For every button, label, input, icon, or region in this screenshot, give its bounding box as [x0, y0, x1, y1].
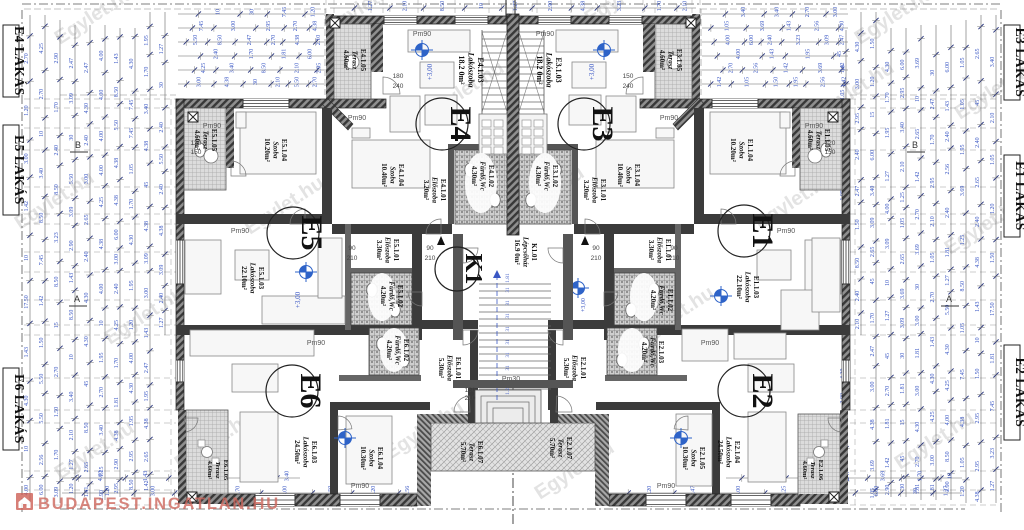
svg-text:31: 31	[506, 300, 511, 306]
svg-text:10: 10	[975, 337, 981, 343]
svg-text:2.65: 2.65	[84, 214, 90, 225]
svg-text:4.60m²: 4.60m²	[801, 461, 808, 480]
svg-text:1.43: 1.43	[770, 49, 776, 60]
svg-text:Terasz: Terasz	[214, 461, 221, 479]
svg-text:2.10: 2.10	[855, 319, 861, 330]
svg-text:2.10: 2.10	[69, 430, 75, 441]
svg-text:K1.01: K1.01	[530, 243, 538, 261]
svg-text:6.00: 6.00	[900, 59, 906, 70]
svg-text:10: 10	[841, 65, 847, 71]
svg-text:1.05: 1.05	[129, 164, 135, 175]
svg-text:150: 150	[191, 149, 202, 156]
svg-text:3.00: 3.00	[114, 254, 120, 265]
svg-text:Fürdő,Wc: Fürdő,Wc	[479, 161, 487, 190]
svg-text:1.95: 1.95	[144, 391, 150, 402]
svg-text:6.00: 6.00	[114, 229, 120, 240]
svg-text:2.40: 2.40	[84, 135, 90, 146]
svg-text:1.81: 1.81	[945, 247, 951, 258]
svg-text:1.70: 1.70	[249, 49, 255, 60]
svg-text:2.40: 2.40	[855, 291, 861, 302]
svg-text:E5.1.04: E5.1.04	[280, 139, 288, 162]
svg-text:Pm90: Pm90	[660, 115, 678, 122]
svg-text:4.30: 4.30	[930, 373, 936, 384]
svg-text:Pm30: Pm30	[502, 376, 520, 383]
svg-text:Pm90: Pm90	[348, 115, 366, 122]
svg-text:180: 180	[393, 73, 404, 80]
svg-text:3.00: 3.00	[196, 77, 202, 88]
svg-text:3.69: 3.69	[915, 244, 921, 255]
svg-text:3.69: 3.69	[818, 63, 824, 74]
svg-text:1.27: 1.27	[944, 486, 950, 497]
svg-text:Lakószoba: Lakószoba	[545, 51, 554, 87]
svg-text:8.50: 8.50	[39, 213, 45, 224]
svg-text:2.90: 2.90	[548, 1, 554, 12]
svg-text:E1 LAKÁS: E1 LAKÁS	[1013, 161, 1024, 231]
svg-text:1.42: 1.42	[717, 77, 723, 88]
svg-text:3.09: 3.09	[159, 265, 165, 276]
svg-text:1.27: 1.27	[159, 317, 165, 328]
svg-text:3.23: 3.23	[617, 1, 623, 12]
svg-text:3.40: 3.40	[285, 471, 291, 482]
svg-text:Terasz: Terasz	[351, 51, 359, 70]
svg-text:1.50: 1.50	[773, 77, 779, 88]
svg-text:1.95: 1.95	[806, 49, 812, 60]
svg-text:4.00: 4.00	[99, 51, 105, 62]
svg-text:+3,00: +3,00	[294, 291, 302, 308]
svg-text:3.00: 3.00	[870, 381, 876, 392]
svg-text:4.38: 4.38	[114, 158, 120, 169]
svg-text:7.45: 7.45	[39, 255, 45, 266]
svg-text:3.00: 3.00	[84, 174, 90, 185]
svg-text:31: 31	[506, 365, 511, 371]
svg-text:1.81: 1.81	[281, 49, 287, 60]
svg-text:6.00: 6.00	[39, 484, 45, 495]
svg-text:E2: E2	[746, 373, 779, 408]
svg-text:120: 120	[825, 140, 836, 147]
svg-text:2.95: 2.95	[114, 483, 120, 494]
svg-text:1.05: 1.05	[960, 58, 966, 69]
svg-text:210: 210	[591, 255, 602, 262]
svg-text:1.20: 1.20	[69, 483, 75, 494]
svg-text:Előszoba: Előszoba	[384, 236, 392, 264]
svg-text:30: 30	[250, 9, 256, 15]
svg-text:Szoba: Szoba	[368, 449, 376, 467]
svg-text:6.00: 6.00	[870, 150, 876, 161]
svg-text:3.09: 3.09	[144, 253, 150, 264]
svg-text:31: 31	[506, 313, 511, 319]
svg-text:2.40: 2.40	[945, 207, 951, 218]
svg-text:1.27: 1.27	[885, 311, 891, 322]
svg-text:1.20: 1.20	[990, 203, 996, 214]
svg-text:4.30: 4.30	[84, 293, 90, 304]
svg-text:4.30: 4.30	[129, 383, 135, 394]
svg-text:E2 LAKÁS: E2 LAKÁS	[1013, 358, 1024, 428]
svg-text:2.95: 2.95	[266, 21, 272, 32]
svg-text:1.95: 1.95	[129, 416, 135, 427]
svg-text:Előszoba: Előszoba	[446, 354, 454, 382]
svg-text:1.70: 1.70	[885, 92, 891, 103]
svg-text:3.00: 3.00	[833, 7, 839, 18]
svg-text:2.70: 2.70	[293, 21, 299, 32]
svg-text:Előszoba: Előszoba	[431, 176, 439, 204]
svg-text:17.50: 17.50	[990, 302, 996, 316]
svg-text:3.30m²: 3.30m²	[375, 240, 383, 260]
svg-text:10: 10	[948, 473, 954, 479]
svg-text:10.30m²: 10.30m²	[359, 446, 367, 470]
svg-text:E2.1.05: E2.1.05	[698, 447, 706, 470]
svg-text:Szoba: Szoba	[272, 141, 280, 159]
svg-text:3.09: 3.09	[69, 93, 75, 104]
svg-text:4.30: 4.30	[839, 21, 845, 32]
svg-text:+3,00: +3,00	[426, 63, 434, 80]
svg-text:1.43: 1.43	[945, 101, 951, 112]
svg-text:8.50: 8.50	[217, 35, 223, 46]
svg-text:6.00: 6.00	[874, 486, 880, 497]
svg-text:E4.1.02: E4.1.02	[487, 165, 495, 188]
svg-text:1.81: 1.81	[900, 383, 906, 394]
svg-text:22.10m²: 22.10m²	[240, 266, 248, 290]
svg-text:4.38: 4.38	[114, 430, 120, 441]
svg-text:E3 LAKÁS: E3 LAKÁS	[1013, 28, 1024, 98]
svg-text:E5.1.01: E5.1.01	[392, 239, 400, 262]
svg-text:10: 10	[215, 9, 221, 15]
svg-text:4.30m²: 4.30m²	[534, 166, 542, 186]
svg-text:4.38: 4.38	[870, 419, 876, 430]
svg-text:3.69: 3.69	[760, 21, 766, 32]
svg-text:2.40: 2.40	[214, 49, 220, 60]
svg-text:1.70: 1.70	[54, 450, 60, 461]
svg-text:22.10m²: 22.10m²	[735, 275, 743, 299]
svg-text:1.20: 1.20	[129, 320, 135, 331]
svg-text:E2.1.01: E2.1.01	[579, 357, 587, 380]
svg-text:E2.1.07: E2.1.07	[565, 437, 573, 460]
svg-text:E2.1.03: E2.1.03	[657, 341, 665, 364]
svg-text:1.50: 1.50	[870, 39, 876, 50]
svg-text:Fürdő,Wc: Fürdő,Wc	[658, 285, 666, 314]
svg-text:30: 30	[913, 488, 919, 494]
svg-text:1.42: 1.42	[39, 296, 45, 307]
svg-text:5.70m²: 5.70m²	[459, 442, 467, 462]
svg-text:30: 30	[253, 79, 259, 85]
svg-text:2.65: 2.65	[870, 247, 876, 258]
svg-text:6.00: 6.00	[749, 35, 755, 46]
svg-text:+3,00: +3,00	[581, 298, 587, 312]
svg-text:30: 30	[930, 70, 936, 76]
svg-text:Pm90: Pm90	[777, 228, 795, 235]
svg-text:5.50: 5.50	[295, 77, 301, 88]
svg-text:5.30m²: 5.30m²	[437, 358, 445, 378]
svg-text:3.40: 3.40	[229, 63, 235, 74]
svg-text:1.70: 1.70	[930, 134, 936, 145]
svg-text:2.70: 2.70	[729, 63, 735, 74]
svg-text:2.40: 2.40	[114, 284, 120, 295]
svg-text:E4 LAKÁS: E4 LAKÁS	[12, 26, 27, 96]
svg-text:2.90: 2.90	[885, 485, 891, 496]
svg-text:E2.1.04: E2.1.04	[733, 441, 741, 464]
svg-text:4.00: 4.00	[99, 131, 105, 142]
svg-text:E4.1.03: E4.1.03	[476, 57, 485, 82]
svg-text:2.10: 2.10	[930, 216, 936, 227]
svg-text:1.81: 1.81	[114, 397, 120, 408]
svg-text:150: 150	[825, 149, 836, 156]
svg-text:4.38: 4.38	[99, 239, 105, 250]
svg-text:E5.1.03: E5.1.03	[257, 267, 265, 290]
svg-text:1.70: 1.70	[657, 1, 663, 12]
svg-text:1.05: 1.05	[744, 77, 750, 88]
svg-text:E1.1.02: E1.1.02	[666, 289, 674, 312]
svg-text:4.00: 4.00	[99, 165, 105, 176]
svg-text:E4.1.05: E4.1.05	[359, 49, 367, 72]
svg-text:2.40: 2.40	[767, 35, 773, 46]
svg-text:10.40m²: 10.40m²	[616, 163, 624, 187]
svg-text:2.95: 2.95	[129, 451, 135, 462]
svg-text:5.50: 5.50	[39, 413, 45, 424]
svg-text:3.40: 3.40	[774, 7, 780, 18]
svg-text:4.60m²: 4.60m²	[806, 130, 814, 150]
svg-text:7.45: 7.45	[129, 128, 135, 139]
svg-text:E3.1.04: E3.1.04	[633, 164, 641, 187]
svg-text:1.05: 1.05	[900, 218, 906, 229]
svg-text:E6.1.04: E6.1.04	[376, 447, 384, 470]
svg-text:Lakószoba: Lakószoba	[744, 271, 752, 303]
svg-text:10.40m²: 10.40m²	[380, 163, 388, 187]
svg-text:210: 210	[425, 255, 436, 262]
svg-text:5.50: 5.50	[193, 35, 199, 46]
svg-text:3.00: 3.00	[855, 79, 861, 90]
svg-text:2.10: 2.10	[990, 113, 996, 124]
svg-text:2.40: 2.40	[54, 145, 60, 156]
svg-text:3.09: 3.09	[69, 207, 75, 218]
svg-text:Pm90: Pm90	[701, 340, 719, 347]
svg-text:3.69: 3.69	[960, 186, 966, 197]
svg-text:4.25: 4.25	[930, 411, 936, 422]
svg-text:K1: K1	[460, 254, 486, 285]
svg-text:120: 120	[191, 140, 202, 147]
svg-text:10.20m²: 10.20m²	[263, 138, 271, 162]
svg-text:30: 30	[915, 284, 921, 290]
svg-text:45: 45	[885, 353, 891, 359]
svg-text:2.65: 2.65	[144, 452, 150, 463]
svg-text:4.60m²: 4.60m²	[658, 50, 666, 70]
svg-text:A: A	[74, 294, 80, 304]
svg-text:3.69: 3.69	[881, 471, 887, 482]
svg-text:1.05: 1.05	[725, 21, 731, 32]
svg-text:E4.1.04: E4.1.04	[397, 164, 405, 187]
svg-text:1.27: 1.27	[159, 44, 165, 55]
svg-text:10: 10	[39, 131, 45, 137]
svg-text:3.23: 3.23	[54, 232, 60, 243]
svg-text:2.56: 2.56	[821, 77, 827, 88]
svg-text:4.38: 4.38	[313, 21, 319, 32]
svg-text:E1.1.04: E1.1.04	[746, 139, 754, 162]
svg-text:2.47: 2.47	[84, 62, 90, 73]
svg-text:2.95: 2.95	[317, 63, 323, 74]
svg-text:4.00: 4.00	[945, 415, 951, 426]
svg-text:E4: E4	[444, 106, 477, 141]
svg-text:Terasz: Terasz	[468, 443, 476, 462]
svg-text:150: 150	[623, 73, 634, 80]
svg-text:E5: E5	[295, 215, 328, 250]
svg-text:Pm90: Pm90	[413, 31, 431, 38]
svg-text:31: 31	[506, 326, 511, 332]
svg-text:8.50: 8.50	[855, 258, 861, 269]
svg-text:90: 90	[348, 245, 356, 252]
svg-text:10: 10	[24, 446, 30, 452]
svg-text:8.50: 8.50	[440, 1, 446, 12]
svg-text:Előszoba: Előszoba	[656, 236, 664, 264]
svg-text:4.30: 4.30	[84, 336, 90, 347]
svg-text:2.40: 2.40	[84, 251, 90, 262]
svg-text:Előszoba: Előszoba	[591, 176, 599, 204]
svg-text:4.38: 4.38	[580, 1, 586, 12]
svg-text:8.50: 8.50	[261, 63, 267, 74]
svg-text:Szoba: Szoba	[690, 449, 698, 467]
svg-text:4.25: 4.25	[39, 43, 45, 54]
svg-text:3.40: 3.40	[741, 7, 747, 18]
svg-text:4.30: 4.30	[129, 235, 135, 246]
svg-text:5.50: 5.50	[114, 120, 120, 131]
svg-text:1.42: 1.42	[784, 63, 790, 74]
svg-text:1.20: 1.20	[960, 486, 966, 497]
svg-text:90: 90	[426, 245, 434, 252]
svg-text:1.81: 1.81	[990, 353, 996, 364]
svg-text:1.42: 1.42	[842, 77, 848, 88]
svg-text:45: 45	[84, 381, 90, 387]
svg-text:B: B	[75, 140, 81, 150]
svg-text:5.50: 5.50	[69, 174, 75, 185]
svg-text:4.25: 4.25	[201, 63, 207, 74]
svg-text:10: 10	[885, 280, 891, 286]
svg-text:4.25: 4.25	[114, 320, 120, 331]
svg-text:2.40: 2.40	[159, 184, 165, 195]
svg-text:3.09: 3.09	[885, 238, 891, 249]
svg-text:1.27: 1.27	[69, 459, 75, 470]
svg-text:2.56: 2.56	[945, 164, 951, 175]
svg-text:Fürdő,Wc: Fürdő,Wc	[394, 335, 402, 364]
svg-text:1.42: 1.42	[885, 458, 891, 469]
svg-text:1.95: 1.95	[960, 145, 966, 156]
svg-text:1.05: 1.05	[840, 90, 846, 101]
svg-text:2.47: 2.47	[930, 99, 936, 110]
svg-text:2.95: 2.95	[855, 113, 861, 124]
svg-text:E1: E1	[746, 213, 779, 248]
svg-text:E1.1.03: E1.1.03	[752, 276, 760, 299]
svg-text:2.70: 2.70	[271, 35, 277, 46]
svg-text:4.38: 4.38	[114, 195, 120, 206]
svg-text:Lakószoba: Lakószoba	[725, 436, 733, 468]
svg-text:210: 210	[347, 255, 358, 262]
svg-text:2.70: 2.70	[930, 292, 936, 303]
svg-text:2.70: 2.70	[39, 89, 45, 100]
svg-text:2.47: 2.47	[69, 58, 75, 69]
svg-text:2.95: 2.95	[900, 88, 906, 99]
svg-text:2.70: 2.70	[885, 386, 891, 397]
svg-text:45: 45	[837, 51, 843, 57]
svg-text:Pm90: Pm90	[231, 228, 249, 235]
svg-text:18.2 0m²: 18.2 0m²	[535, 55, 544, 85]
svg-text:2.40: 2.40	[975, 216, 981, 227]
svg-text:3.40: 3.40	[69, 392, 75, 403]
svg-text:15: 15	[900, 420, 906, 426]
svg-text:1.81: 1.81	[915, 348, 921, 359]
svg-text:1.42: 1.42	[915, 172, 921, 183]
svg-text:E3.1.03: E3.1.03	[554, 57, 563, 82]
svg-text:E3.1.02: E3.1.02	[551, 165, 559, 188]
svg-text:10: 10	[479, 3, 485, 9]
svg-text:7.45: 7.45	[282, 7, 288, 18]
svg-text:1.20: 1.20	[24, 105, 30, 116]
svg-text:1.50: 1.50	[855, 219, 861, 230]
svg-text:1.20: 1.20	[311, 7, 317, 18]
svg-text:5.50: 5.50	[39, 374, 45, 385]
svg-text:1.27: 1.27	[885, 171, 891, 182]
svg-text:4.00: 4.00	[725, 35, 731, 46]
svg-text:8.50: 8.50	[54, 184, 60, 195]
svg-text:Fürdő,Wc: Fürdő,Wc	[543, 161, 551, 190]
svg-text:4.38: 4.38	[960, 417, 966, 428]
svg-text:4.25: 4.25	[945, 380, 951, 391]
svg-text:1.05: 1.05	[990, 154, 996, 165]
svg-text:2.70: 2.70	[99, 387, 105, 398]
svg-text:1.95: 1.95	[794, 77, 800, 88]
svg-text:2.10: 2.10	[295, 63, 301, 74]
svg-text:4.30: 4.30	[945, 344, 951, 355]
svg-text:3.69: 3.69	[915, 58, 921, 69]
svg-text:1.43: 1.43	[786, 21, 792, 32]
svg-text:1.43: 1.43	[144, 328, 150, 339]
svg-text:6.00: 6.00	[945, 62, 951, 73]
svg-text:E5 LAKÁS: E5 LAKÁS	[12, 135, 27, 205]
svg-text:1.70: 1.70	[129, 199, 135, 210]
svg-text:2.47: 2.47	[247, 35, 253, 46]
svg-text:2.70: 2.70	[54, 367, 60, 378]
svg-text:1.70: 1.70	[114, 358, 120, 369]
svg-text:1.95: 1.95	[144, 35, 150, 46]
svg-text:31: 31	[506, 352, 511, 358]
svg-text:Fürdő,Wc: Fürdő,Wc	[388, 281, 396, 310]
svg-text:4.60m²: 4.60m²	[342, 50, 350, 70]
svg-text:1.20: 1.20	[870, 76, 876, 87]
svg-text:4.30: 4.30	[129, 59, 135, 70]
svg-text:2.10: 2.10	[276, 77, 282, 88]
svg-text:5.30m²: 5.30m²	[562, 358, 570, 378]
svg-text:2.65: 2.65	[975, 48, 981, 59]
svg-text:2.10: 2.10	[316, 35, 322, 46]
svg-text:Pm90: Pm90	[657, 483, 675, 490]
svg-text:4.38: 4.38	[975, 491, 981, 502]
svg-text:10: 10	[915, 96, 921, 102]
svg-text:1.95: 1.95	[129, 280, 135, 291]
svg-text:2.47: 2.47	[144, 363, 150, 374]
svg-text:1.70: 1.70	[144, 67, 150, 78]
svg-text:E6 LAKÁS: E6 LAKÁS	[12, 374, 27, 444]
svg-text:2.65: 2.65	[84, 462, 90, 473]
svg-text:Pm90: Pm90	[307, 340, 325, 347]
svg-text:E2.1.06: E2.1.06	[817, 460, 824, 481]
svg-text:1.27: 1.27	[945, 275, 951, 286]
svg-text:4.30: 4.30	[855, 42, 861, 53]
svg-text:2.56: 2.56	[39, 455, 45, 466]
svg-text:E6: E6	[294, 373, 327, 408]
svg-text:1.25: 1.25	[960, 235, 966, 246]
svg-text:4.00: 4.00	[98, 471, 104, 482]
svg-text:45: 45	[900, 456, 906, 462]
svg-text:150: 150	[465, 387, 476, 394]
svg-text:30: 30	[159, 82, 165, 88]
svg-text:2.90: 2.90	[114, 459, 120, 470]
svg-text:2.40: 2.40	[975, 137, 981, 148]
svg-text:3.00: 3.00	[930, 455, 936, 466]
